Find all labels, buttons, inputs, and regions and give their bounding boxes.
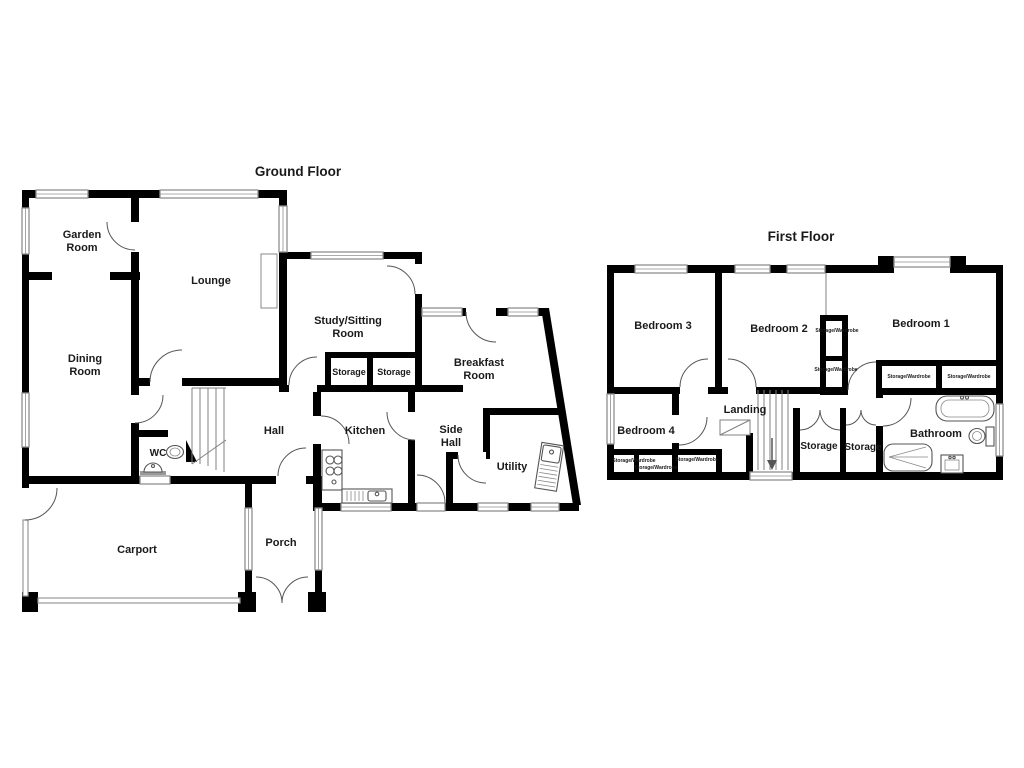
room-label-dining-room: Dining — [68, 353, 102, 365]
room-label-bedroom-1: Bedroom 1 — [892, 318, 949, 330]
room-label-wc: WC — [150, 448, 167, 459]
chimney-breast — [261, 254, 277, 308]
room-label-bathroom: Bathroom — [910, 428, 962, 440]
bathroom-sink-icon — [941, 455, 963, 473]
kitchen-sink-icon — [342, 489, 392, 503]
room-label-storage-closet-left: Storage — [800, 441, 838, 452]
label-storage-wardrobe-bed4-2: Storage/Wardrobe — [634, 465, 677, 471]
basin-icon — [140, 463, 166, 473]
label-storage-wardrobe-bed4-3: Storage/Wardrobe — [675, 457, 718, 463]
room-label-bedroom-3: Bedroom 3 — [634, 320, 691, 332]
ground-floor-stairs — [192, 388, 226, 472]
room-label-breakfast-room-2: Room — [463, 370, 494, 382]
room-label-carport: Carport — [117, 544, 157, 556]
label-storage-wardrobe-bed1-right: Storage/Wardrobe — [947, 374, 990, 380]
first-floor-door-openings — [672, 265, 950, 443]
room-label-storage-right: Storage — [377, 367, 411, 377]
room-label-dining-room-2: Room — [69, 366, 100, 378]
first-floor-plan: First Floor — [607, 229, 1003, 480]
floorplan-page: Ground Floor — [0, 0, 1024, 768]
room-label-garden-room-2: Room — [66, 242, 97, 254]
room-label-study-sitting-2: Room — [332, 328, 363, 340]
room-label-landing: Landing — [724, 404, 767, 416]
room-label-hall: Hall — [264, 425, 284, 437]
floorplan-svg: Ground Floor — [0, 0, 1024, 768]
ground-floor-title: Ground Floor — [255, 164, 342, 179]
room-label-storage-left: Storage — [332, 367, 366, 377]
carport-open-wall-left — [23, 520, 28, 596]
room-label-breakfast-room: Breakfast — [454, 357, 504, 369]
label-storage-wardrobe-column-top: Storage/Wardrobe — [815, 328, 858, 334]
room-label-storage-closet-right: Storage — [844, 442, 882, 453]
carport-open-wall-bottom — [38, 598, 240, 603]
shower-icon — [884, 444, 932, 471]
toilet-icon — [167, 446, 184, 459]
room-label-lounge: Lounge — [191, 275, 231, 287]
room-label-side-hall-2: Hall — [441, 437, 461, 449]
label-storage-wardrobe-bed4-1: Storage/Wardrobe — [612, 458, 655, 464]
bathtub-icon — [936, 396, 994, 421]
hob-icon — [322, 450, 342, 490]
label-storage-wardrobe-column-bottom: Storage/Wardrobe — [814, 367, 857, 373]
room-label-garden-room: Garden — [63, 229, 102, 241]
room-label-side-hall: Side — [439, 424, 462, 436]
room-label-kitchen: Kitchen — [345, 425, 386, 437]
room-label-bedroom-2: Bedroom 2 — [750, 323, 807, 335]
first-floor-title: First Floor — [768, 229, 835, 244]
utility-sink-icon — [535, 442, 564, 491]
room-label-porch: Porch — [265, 537, 296, 549]
room-label-bedroom-4: Bedroom 4 — [617, 425, 675, 437]
ground-floor-plan: Ground Floor — [22, 164, 581, 612]
label-storage-wardrobe-bed1-left: Storage/Wardrobe — [887, 374, 930, 380]
first-floor-stairs — [720, 390, 788, 470]
room-label-utility: Utility — [497, 461, 528, 473]
room-label-study-sitting: Study/Sitting — [314, 315, 382, 327]
ground-floor-walls — [22, 190, 581, 612]
toilet-icon-first-floor — [969, 427, 994, 446]
